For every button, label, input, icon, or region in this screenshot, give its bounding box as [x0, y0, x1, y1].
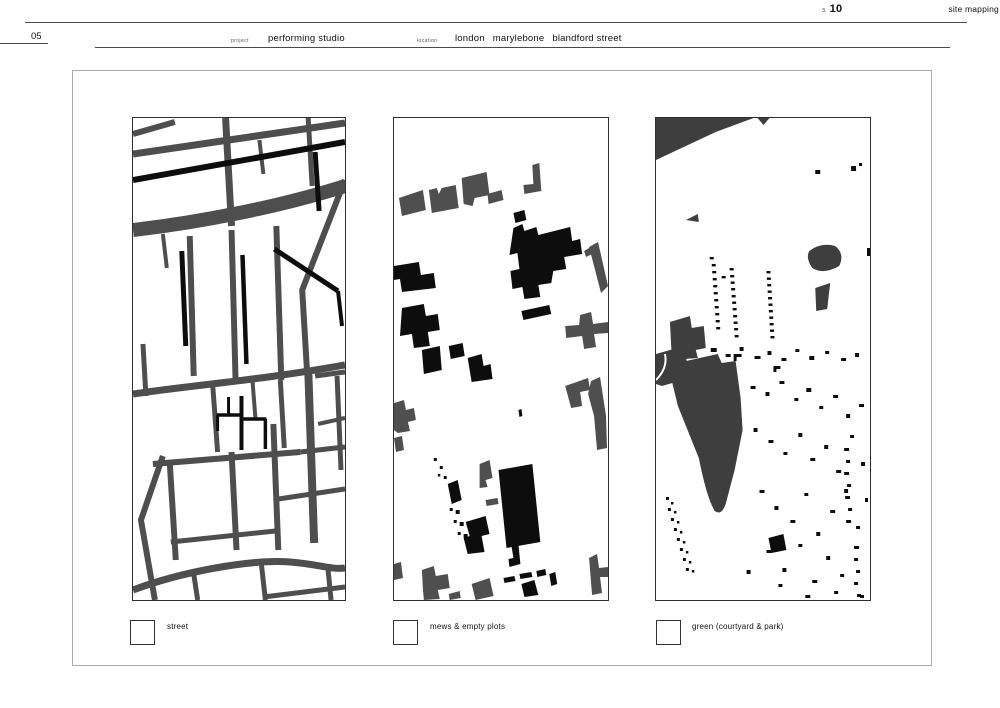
project-label: project [231, 38, 249, 44]
sheet-title: site mapping [948, 4, 999, 14]
street-legend-box [130, 620, 155, 645]
green-map-panel [655, 117, 871, 601]
green-trail-dots [666, 497, 694, 573]
green-legend-box [656, 620, 681, 645]
mews-gray-plots [394, 163, 608, 600]
street-network [133, 118, 345, 600]
left-stub-rule [0, 43, 48, 44]
header-rule-main [95, 47, 950, 48]
section-ref: 3. [822, 8, 827, 14]
green-legend-label: green (courtyard & park) [692, 622, 784, 631]
location-street: blandford street [552, 33, 621, 44]
project-value: performing studio [268, 33, 345, 44]
location-values: london marylebone blandford street [455, 33, 622, 44]
mews-map-panel [393, 117, 609, 601]
portfolio-sheet: 3. 10 site mapping 05 project performing… [0, 0, 1000, 708]
location-district: marylebone [493, 33, 545, 44]
sheet-number: 05 [31, 31, 42, 42]
green-tree-rows [710, 257, 775, 338]
page-number: 10 [830, 3, 843, 15]
street-legend-label: street [167, 622, 188, 631]
mews-map-figure [394, 118, 608, 600]
mews-legend-label: mews & empty plots [430, 622, 505, 631]
location-label: location [417, 38, 437, 44]
location-city: london [455, 33, 485, 44]
street-map-panel [132, 117, 346, 601]
street-map-figure [133, 118, 345, 600]
mews-legend-box [393, 620, 418, 645]
mews-black-plots [394, 210, 582, 597]
green-park-areas [656, 118, 841, 512]
header-rule-top [25, 22, 967, 23]
page-reference: 3. 10 [822, 3, 842, 15]
green-map-figure [656, 118, 870, 600]
